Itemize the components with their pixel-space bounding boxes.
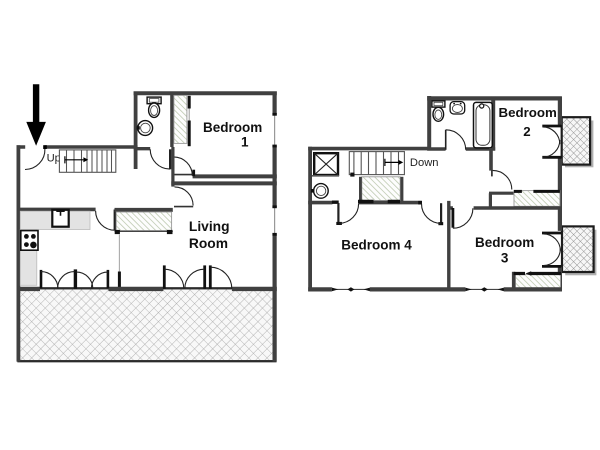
svg-text:Living: Living xyxy=(189,219,230,234)
svg-text:1: 1 xyxy=(241,134,249,149)
svg-text:Bedroom 4: Bedroom 4 xyxy=(341,238,412,253)
svg-text:Bedroom: Bedroom xyxy=(475,235,534,250)
svg-text:Bedroom: Bedroom xyxy=(499,105,557,120)
svg-text:Room: Room xyxy=(189,236,228,251)
svg-text:Up: Up xyxy=(47,152,61,164)
svg-text:2: 2 xyxy=(523,124,530,139)
svg-text:Down: Down xyxy=(410,157,439,169)
svg-text:3: 3 xyxy=(501,250,509,265)
svg-text:Bedroom: Bedroom xyxy=(203,120,262,135)
